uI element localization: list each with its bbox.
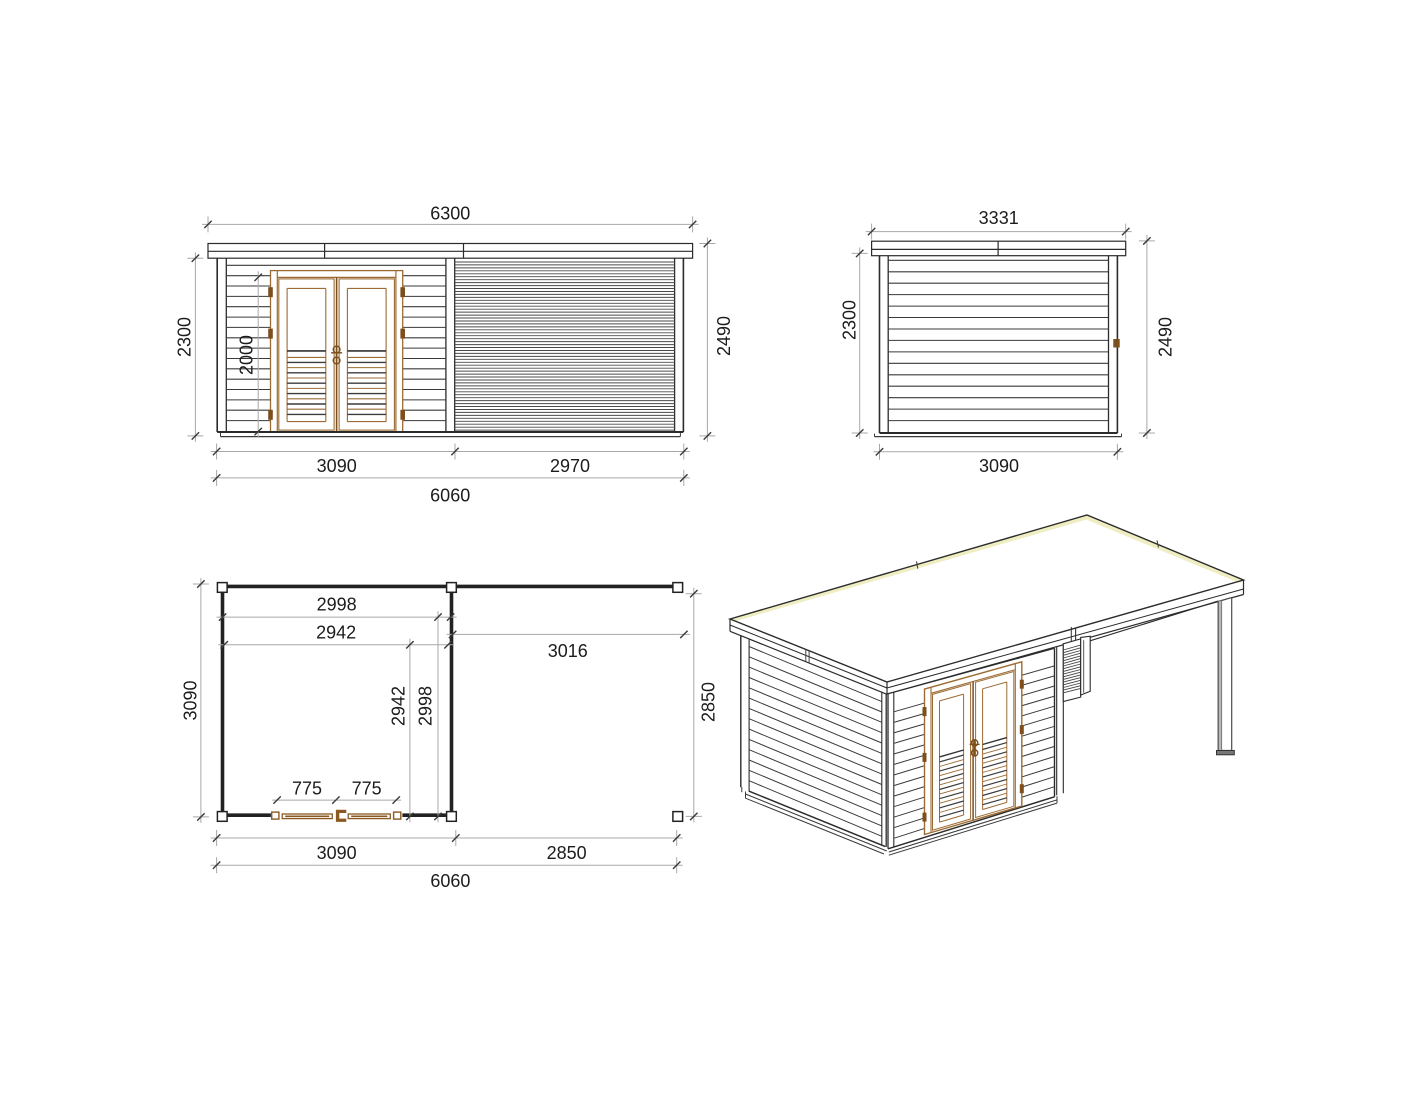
svg-text:775: 775 [352, 778, 382, 798]
svg-text:2000: 2000 [236, 335, 256, 375]
svg-text:2998: 2998 [416, 686, 436, 726]
svg-text:3016: 3016 [548, 641, 588, 661]
svg-text:2970: 2970 [550, 456, 590, 476]
svg-text:3090: 3090 [180, 680, 200, 720]
svg-text:2300: 2300 [174, 317, 194, 357]
svg-text:3090: 3090 [317, 843, 357, 863]
svg-text:2850: 2850 [698, 682, 718, 722]
svg-text:2942: 2942 [389, 686, 409, 726]
svg-text:3331: 3331 [979, 208, 1019, 228]
svg-text:2998: 2998 [317, 594, 357, 614]
svg-text:6300: 6300 [430, 204, 470, 224]
svg-text:2942: 2942 [316, 622, 356, 642]
svg-text:2850: 2850 [547, 843, 587, 863]
svg-text:775: 775 [292, 778, 322, 798]
svg-text:2490: 2490 [714, 316, 734, 356]
svg-text:2300: 2300 [839, 300, 859, 340]
svg-text:3090: 3090 [979, 456, 1019, 476]
svg-text:6060: 6060 [430, 486, 470, 506]
svg-text:3090: 3090 [317, 456, 357, 476]
svg-text:6060: 6060 [430, 871, 470, 891]
svg-text:2490: 2490 [1155, 317, 1175, 357]
